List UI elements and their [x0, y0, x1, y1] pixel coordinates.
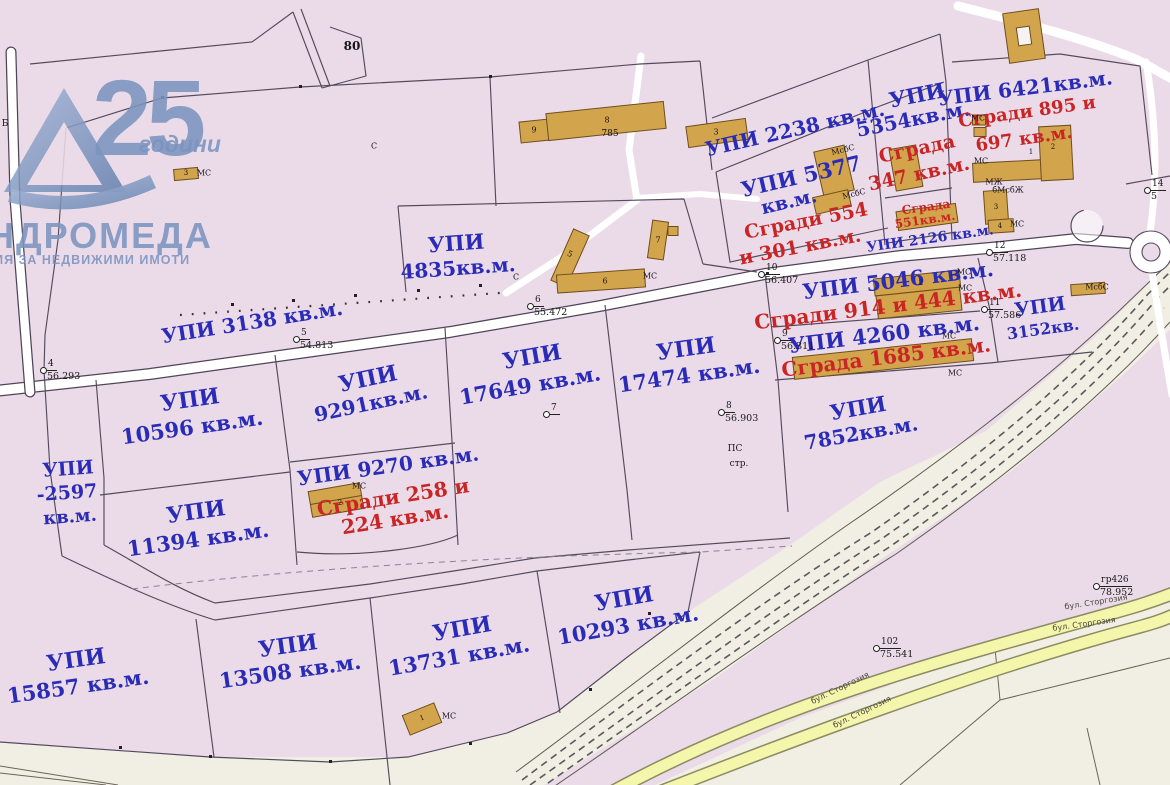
ms-7: МС [958, 284, 972, 293]
bldg-5: 5 [566, 249, 574, 259]
pt-gr426-elevation: 78.952 [1100, 587, 1133, 598]
pt-6-marker-icon [527, 303, 534, 310]
pt-8-marker-icon [718, 409, 725, 416]
map-labels: УПИ 3138 кв.м.УПИ4835кв.м.УПИ 2238 кв.м.… [0, 0, 1170, 785]
pt-4-elevation: 56.293 [47, 371, 80, 382]
bldg-6: 6 [602, 277, 607, 286]
building-number-785: 785 [601, 129, 618, 139]
bldg-8: 8 [604, 116, 609, 125]
pt-4-number: 4 [47, 359, 57, 371]
pt-12-elevation: 57.118 [993, 253, 1026, 264]
upi-2597-a: УПИ [42, 456, 95, 482]
pt-gr426-marker-icon [1093, 583, 1100, 590]
pt-4: 456.293 [47, 359, 80, 382]
pt-10-number: 10 [765, 263, 780, 275]
bldg-7: 7 [655, 236, 660, 245]
pt-gr426: гр42678.952 [1100, 575, 1133, 598]
pt-5-number: 5 [300, 328, 310, 340]
pt-6-elevation: 55.472 [534, 307, 567, 318]
str-note: стр. [730, 459, 749, 469]
pt-7-marker-icon [543, 411, 550, 418]
pt-102-elevation: 75.541 [880, 649, 913, 660]
pt-12-number: 12 [993, 241, 1008, 253]
s-1: С [513, 273, 519, 282]
upi-2126: УПИ 2126 кв.м. [865, 222, 994, 256]
bldg-2-r: 2 [1051, 143, 1055, 151]
ms-6: МС [957, 268, 971, 277]
ms-2: МС [197, 169, 211, 178]
blvd-storgozia-1: бул. Сторгозия [810, 670, 871, 706]
ms-10: МС [352, 482, 366, 491]
msbs-3: МсбС [1085, 283, 1109, 292]
pt-14-number: 14 [1151, 179, 1166, 191]
s-2: С [371, 142, 377, 151]
pt-6-number: 6 [534, 295, 544, 307]
ms-4: МС [971, 114, 985, 123]
pt-11-elevation: 57.586 [988, 310, 1021, 321]
bldg-2-914: 2 [919, 279, 923, 287]
pt-5-marker-icon [293, 336, 300, 343]
pt-14-marker-icon [1144, 187, 1151, 194]
pt-5: 554.813 [300, 328, 333, 351]
upi-4835-a: УПИ [427, 229, 485, 258]
cadastral-map: УПИ 3138 кв.м.УПИ4835кв.м.УПИ 2238 кв.м.… [0, 0, 1170, 785]
pt-9-number: 9 [781, 329, 791, 341]
ms-3: МС [974, 157, 988, 166]
parcel-number-80: 80 [344, 39, 361, 53]
pt-9-elevation: 56.311 [781, 341, 814, 352]
bmsbzh: бМсбЖ [992, 186, 1023, 195]
bldg-1-r: 1 [1029, 148, 1033, 156]
ms-1: МС [643, 272, 657, 281]
ms-11: МС [442, 712, 456, 721]
upi-2597-b: -2597 [36, 480, 98, 506]
pt-8: 856.903 [725, 401, 758, 424]
pt-102-marker-icon [873, 645, 880, 652]
pt-11-marker-icon [981, 306, 988, 313]
pt-7: 7 [550, 403, 560, 415]
ms-8: МС [942, 332, 956, 341]
bldg-1-13731: 1 [419, 713, 426, 722]
blvd-storgozia-4: бул. Сторгозия [1052, 615, 1116, 633]
upi-2597-c: кв.м. [42, 505, 97, 530]
bldg-3-top: 3 [713, 128, 718, 137]
pt-10-elevation: 56.407 [765, 275, 798, 286]
pt-7-number: 7 [550, 403, 560, 415]
pt-11: 1157.586 [988, 298, 1021, 321]
edge-b: Б [2, 119, 9, 129]
pt-8-elevation: 56.903 [725, 413, 758, 424]
pt-10-marker-icon [758, 271, 765, 278]
pt-14-elevation: 5 [1151, 191, 1166, 202]
blvd-storgozia-2: бул. Сторгозия [832, 694, 893, 730]
pt-12-marker-icon [986, 249, 993, 256]
pt-9-marker-icon [774, 337, 781, 344]
bldg-9: 9 [531, 126, 536, 135]
ms-9: МС [948, 369, 962, 378]
pt-14: 145 [1151, 179, 1166, 202]
pt-12: 1257.118 [993, 241, 1026, 264]
pt-9: 956.311 [781, 329, 814, 352]
ps-note: ПС [728, 444, 743, 454]
pt-102: 10275.541 [880, 637, 913, 660]
bldg-4-r: 4 [998, 222, 1002, 230]
bldg-2-9270: 2 [338, 499, 342, 507]
upi-4835-b: 4835кв.м. [400, 252, 517, 284]
pt-6: 655.472 [534, 295, 567, 318]
pt-11-number: 11 [988, 298, 1003, 310]
bldg-3-tl: 3 [184, 169, 188, 177]
pt-5-elevation: 54.813 [300, 340, 333, 351]
bldg-3-r: 3 [994, 203, 998, 211]
pt-102-number: 102 [880, 637, 901, 649]
pt-8-number: 8 [725, 401, 735, 413]
pt-4-marker-icon [40, 367, 47, 374]
ms-5: МС [1010, 220, 1024, 229]
pt-10: 1056.407 [765, 263, 798, 286]
pt-gr426-number: гр426 [1100, 575, 1132, 587]
